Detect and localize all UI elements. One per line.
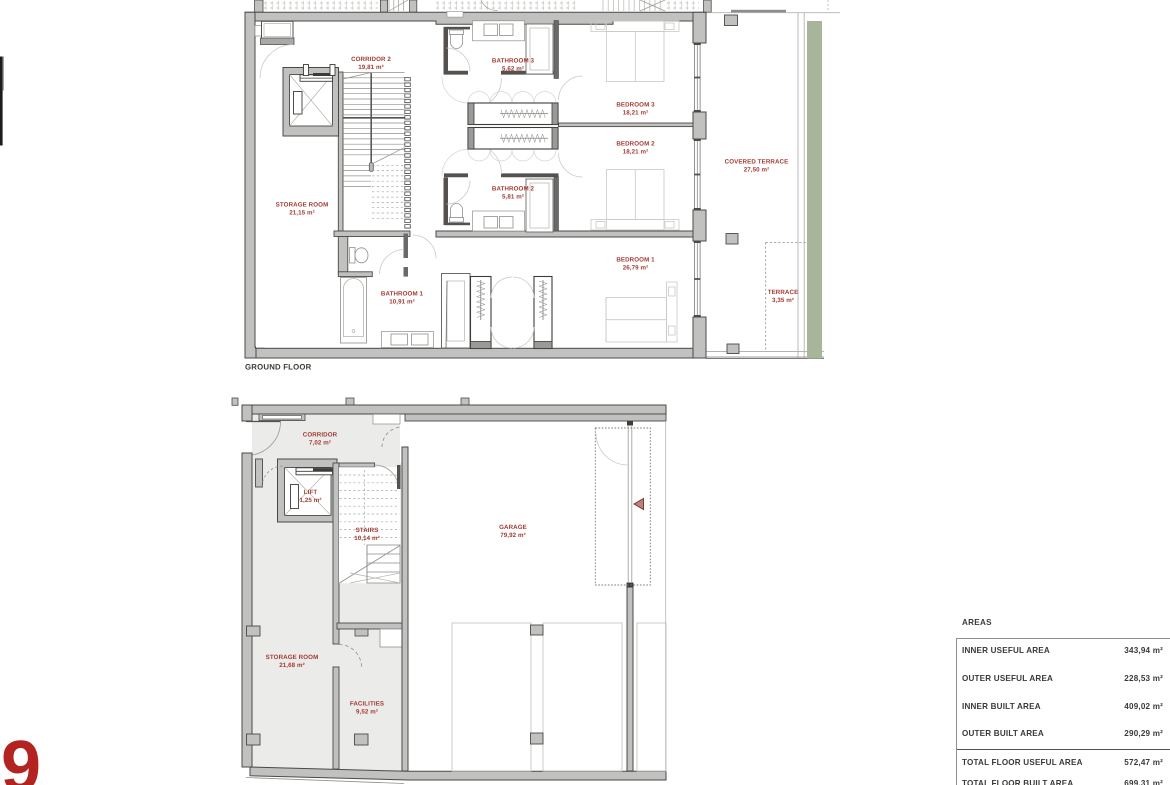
svg-text:BEDROOM 2: BEDROOM 2 bbox=[616, 141, 655, 148]
svg-text:27,50 m²: 27,50 m² bbox=[744, 167, 770, 174]
svg-text:5,81 m²: 5,81 m² bbox=[502, 194, 524, 201]
svg-text:18,21 m²: 18,21 m² bbox=[623, 149, 649, 156]
svg-text:7,02 m²: 7,02 m² bbox=[309, 440, 331, 447]
svg-text:21,68 m²: 21,68 m² bbox=[279, 662, 305, 669]
svg-text:26,79 m²: 26,79 m² bbox=[623, 265, 649, 272]
svg-text:BATHROOM 2: BATHROOM 2 bbox=[492, 186, 535, 193]
svg-text:10,91 m²: 10,91 m² bbox=[389, 299, 415, 306]
svg-text:GROUND FLOOR: GROUND FLOOR bbox=[245, 363, 312, 372]
svg-text:CORRIDOR 2: CORRIDOR 2 bbox=[351, 56, 391, 63]
svg-text:BATHROOM 1: BATHROOM 1 bbox=[381, 291, 424, 298]
svg-text:18,21 m²: 18,21 m² bbox=[623, 109, 649, 116]
svg-text:BATHROOM 3: BATHROOM 3 bbox=[492, 57, 535, 64]
svg-text:STORAGE ROOM: STORAGE ROOM bbox=[276, 202, 329, 209]
svg-text:BEDROOM 3: BEDROOM 3 bbox=[616, 101, 655, 108]
svg-text:5,62 m²: 5,62 m² bbox=[502, 65, 524, 72]
svg-text:3,35 m²: 3,35 m² bbox=[772, 297, 794, 304]
svg-text:9,52 m²: 9,52 m² bbox=[356, 709, 378, 716]
svg-text:10,14 m²: 10,14 m² bbox=[354, 535, 380, 542]
svg-text:FACILITIES: FACILITIES bbox=[350, 701, 384, 708]
svg-text:21,15 m²: 21,15 m² bbox=[289, 210, 315, 217]
svg-text:79,92 m²: 79,92 m² bbox=[500, 532, 526, 539]
svg-text:STORAGE ROOM: STORAGE ROOM bbox=[266, 654, 319, 661]
svg-text:CORRIDOR: CORRIDOR bbox=[303, 432, 338, 439]
svg-text:BEDROOM 1: BEDROOM 1 bbox=[616, 257, 655, 264]
svg-text:19,81 m²: 19,81 m² bbox=[358, 64, 384, 71]
svg-text:COVERED TERRACE: COVERED TERRACE bbox=[725, 159, 789, 166]
svg-text:LIFT: LIFT bbox=[304, 489, 318, 496]
svg-text:1,25 m²: 1,25 m² bbox=[299, 497, 321, 504]
svg-text:GARAGE: GARAGE bbox=[499, 524, 527, 531]
svg-text:STAIRS: STAIRS bbox=[356, 527, 379, 534]
svg-text:TERRACE: TERRACE bbox=[768, 289, 799, 296]
